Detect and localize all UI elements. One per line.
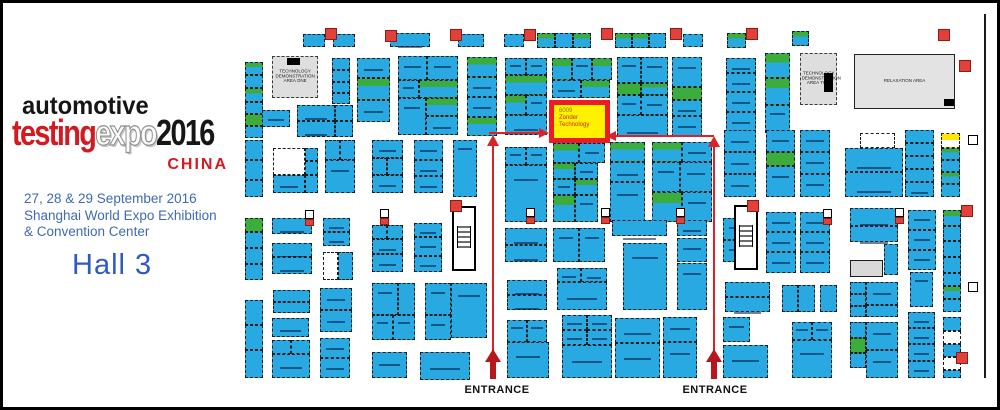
booth	[724, 174, 756, 197]
booth	[505, 58, 526, 75]
route-arrow-line	[616, 135, 714, 137]
pillar-marker	[670, 28, 682, 40]
booth	[552, 58, 572, 80]
entrance-label-left: ENTRANCE	[459, 384, 535, 396]
booth	[245, 264, 263, 280]
pillar-marker	[959, 60, 971, 72]
booth	[800, 232, 830, 252]
booth	[943, 299, 961, 312]
booth	[845, 148, 903, 172]
booth	[943, 317, 961, 331]
event-details: 27, 28 & 29 September 2016 Shanghai Worl…	[24, 191, 239, 241]
booth	[943, 210, 961, 226]
fire-extinguisher-icon	[895, 208, 904, 223]
booth	[908, 210, 936, 230]
booth	[683, 34, 703, 47]
booth	[245, 300, 263, 325]
pillar-marker	[601, 28, 613, 40]
logo-word-testing: testing	[12, 112, 95, 154]
fire-extinguisher-icon	[601, 208, 610, 223]
booth	[792, 340, 832, 378]
route-arrowhead-left	[606, 131, 616, 141]
booth	[615, 343, 660, 378]
booth	[338, 252, 353, 280]
booth	[579, 143, 605, 163]
booth	[908, 250, 936, 270]
booth	[414, 237, 442, 256]
booth	[414, 160, 443, 176]
booth	[649, 33, 666, 48]
pillar-marker	[385, 30, 397, 42]
booth	[505, 95, 526, 115]
booth	[765, 105, 790, 133]
booth	[573, 33, 591, 48]
booth	[453, 140, 477, 197]
booth	[414, 176, 443, 193]
booth	[426, 98, 458, 116]
booth	[587, 330, 612, 345]
booth	[323, 252, 338, 280]
booth	[766, 130, 795, 152]
tech-demo-area-one-marker	[287, 58, 300, 65]
pillar-marker	[938, 29, 950, 41]
booth	[425, 315, 451, 340]
booth	[672, 57, 702, 87]
pillar-marker	[450, 29, 462, 41]
booth	[273, 148, 305, 175]
booth	[467, 57, 497, 77]
booth	[615, 318, 660, 343]
booth	[526, 58, 547, 75]
booth	[245, 126, 263, 138]
booth	[866, 350, 898, 378]
booth	[850, 353, 866, 368]
booth	[507, 320, 527, 342]
booth	[398, 98, 426, 135]
booth	[800, 252, 830, 273]
booth	[581, 80, 610, 98]
booth	[663, 342, 697, 378]
route-arrowhead-right	[539, 128, 549, 138]
route-arrow-line	[713, 147, 715, 372]
booth	[575, 163, 598, 179]
booth	[905, 169, 934, 182]
booth	[884, 244, 898, 275]
booth	[414, 256, 442, 272]
booth	[765, 78, 790, 105]
booth	[320, 358, 350, 378]
booth	[297, 121, 335, 137]
booth	[420, 352, 470, 380]
booth	[272, 257, 312, 274]
booth	[941, 133, 960, 148]
booth	[426, 116, 458, 135]
event-dates: 27, 28 & 29 September 2016	[24, 191, 239, 208]
booth	[414, 223, 442, 237]
booth	[332, 70, 350, 82]
booth	[623, 243, 667, 310]
booth	[910, 272, 933, 307]
booth	[850, 322, 866, 338]
booth	[372, 352, 407, 378]
booth	[663, 317, 697, 342]
booth	[372, 175, 403, 193]
booth	[245, 232, 263, 248]
booth	[272, 340, 291, 354]
booth	[943, 370, 961, 378]
booth	[245, 102, 263, 114]
booth	[387, 158, 403, 175]
booth	[766, 232, 796, 252]
booth	[526, 147, 547, 165]
booth	[504, 34, 524, 47]
logo-word-china: CHINA	[148, 156, 228, 174]
fire-extinguisher-icon	[823, 209, 832, 224]
route-arrowhead-up	[487, 135, 499, 146]
pillar-marker	[325, 28, 337, 40]
booth	[908, 312, 935, 328]
booth	[943, 241, 961, 257]
entrance-label-right: ENTRANCE	[677, 384, 753, 396]
booth	[612, 220, 667, 236]
booth	[908, 328, 935, 344]
booth	[505, 245, 547, 262]
logo-word-year: 2016	[156, 112, 214, 154]
booth	[610, 182, 645, 222]
booth	[672, 87, 702, 100]
booth	[641, 83, 668, 95]
booth	[451, 283, 487, 338]
booth	[908, 230, 936, 250]
booth	[305, 161, 318, 175]
booth	[262, 110, 290, 127]
booth	[398, 283, 415, 315]
booth	[727, 33, 746, 48]
booth	[273, 290, 310, 302]
booth	[245, 248, 263, 264]
booth	[505, 147, 526, 165]
booth	[467, 77, 497, 97]
booth	[725, 282, 770, 297]
relaxation-area-label: RELAXATION AREA	[867, 79, 941, 84]
pillar-marker	[450, 200, 462, 212]
fire-extinguisher-icon	[676, 208, 685, 223]
booth	[610, 142, 645, 162]
booth	[617, 95, 641, 115]
booth	[652, 162, 680, 192]
pillar-marker	[956, 352, 968, 364]
booth	[425, 283, 451, 315]
booth	[766, 212, 796, 232]
fire-extinguisher-icon	[380, 209, 389, 224]
pillar-marker	[524, 29, 536, 41]
booth	[505, 228, 547, 245]
booth	[320, 338, 350, 358]
booth	[467, 97, 497, 117]
booth	[579, 228, 605, 262]
booth	[677, 263, 707, 310]
booth	[800, 130, 830, 152]
booth	[562, 330, 587, 345]
booth	[427, 56, 458, 80]
booth	[866, 322, 898, 350]
booth	[562, 345, 612, 378]
highlighted-booth-name-line1: Zonder	[559, 115, 603, 122]
booth	[725, 297, 770, 312]
booth	[303, 34, 325, 47]
booth	[372, 315, 393, 340]
booth	[507, 342, 549, 378]
door-marker	[968, 135, 978, 145]
booth	[414, 140, 443, 160]
booth	[305, 175, 318, 193]
booth	[941, 160, 960, 172]
booth	[553, 143, 579, 163]
booth	[766, 166, 795, 197]
booth	[617, 115, 668, 136]
booth	[943, 331, 961, 344]
booth	[941, 184, 960, 197]
booth	[641, 57, 668, 83]
booth	[632, 33, 649, 48]
booth	[724, 152, 756, 174]
booth	[866, 305, 898, 317]
booth	[575, 179, 598, 195]
highlighted-booth-name-line2: Technology	[559, 122, 603, 129]
booth	[782, 285, 798, 312]
booth	[766, 152, 795, 166]
door-marker	[968, 282, 978, 292]
booth	[557, 282, 607, 310]
booth	[325, 160, 355, 193]
booth	[552, 80, 581, 98]
booth	[765, 53, 790, 78]
booth	[587, 315, 612, 330]
office-box	[850, 260, 883, 277]
booth	[723, 345, 768, 378]
booth	[245, 218, 263, 232]
booth	[245, 325, 263, 350]
booth	[245, 350, 263, 378]
booth	[850, 282, 866, 294]
route-arrow-line	[492, 146, 494, 372]
booth	[291, 340, 310, 354]
booth	[272, 243, 312, 257]
booth	[641, 95, 668, 115]
floor-plan: automotive testingexpo2016 CHINA 27, 28 …	[0, 0, 1000, 410]
booth	[273, 302, 310, 313]
booth	[845, 172, 903, 197]
logo-word-expo: expo	[95, 112, 156, 154]
fire-extinguisher-icon	[526, 208, 535, 223]
booth	[724, 130, 756, 152]
booth	[398, 56, 427, 80]
pillar-marker	[746, 28, 758, 40]
booth	[581, 268, 607, 282]
booth	[617, 57, 641, 83]
booth	[323, 218, 350, 232]
booth	[592, 58, 612, 80]
booth	[372, 140, 403, 158]
booth	[610, 162, 645, 182]
booth	[332, 58, 350, 70]
booth	[332, 82, 350, 93]
booth	[943, 286, 961, 299]
event-venue-line2: & Convention Center	[24, 224, 239, 241]
booth	[357, 58, 390, 78]
booth	[800, 174, 830, 197]
booth	[672, 116, 702, 137]
booth	[905, 182, 934, 197]
booth	[372, 254, 403, 272]
pillar-marker	[961, 205, 973, 217]
booth	[393, 315, 415, 340]
booth	[357, 78, 390, 100]
stairs-icon	[734, 205, 758, 270]
booth	[860, 133, 895, 148]
booth	[357, 100, 390, 122]
booth	[677, 238, 707, 262]
booth	[507, 280, 547, 295]
booth	[325, 140, 340, 160]
booth	[505, 75, 547, 95]
booth	[941, 172, 960, 184]
booth	[905, 143, 934, 156]
booth	[850, 306, 866, 317]
booth	[800, 152, 830, 174]
booth	[615, 33, 632, 48]
booth	[245, 160, 263, 180]
booth	[672, 100, 702, 116]
booth	[617, 83, 641, 95]
booth	[555, 33, 573, 48]
highlighted-booth: 6009 Zonder Technology	[549, 100, 610, 143]
booth	[792, 322, 812, 340]
booth	[553, 195, 575, 222]
relaxation-area-marker	[944, 99, 954, 106]
booth	[320, 288, 352, 310]
hall-label: Hall 3	[72, 249, 152, 282]
booth	[850, 208, 898, 226]
booth	[572, 58, 592, 80]
stairs-icon	[452, 206, 476, 271]
tech-demo-area-two-marker	[824, 73, 833, 92]
booth	[245, 180, 263, 197]
booth	[332, 93, 350, 104]
booth	[850, 294, 866, 306]
booth	[905, 156, 934, 169]
booth	[320, 310, 352, 332]
booth	[908, 344, 935, 361]
booth	[908, 361, 935, 378]
booth	[245, 62, 263, 75]
booth	[398, 80, 419, 98]
booth	[526, 95, 547, 115]
booth	[245, 140, 263, 160]
booth	[682, 192, 712, 222]
booth	[652, 142, 682, 162]
booth	[273, 175, 305, 193]
booth	[245, 114, 263, 126]
booth	[820, 285, 837, 312]
relaxation-area: RELAXATION AREA	[854, 54, 955, 109]
booth	[340, 140, 355, 160]
booth	[553, 179, 575, 195]
booth	[726, 73, 756, 92]
booth	[335, 105, 353, 121]
booth	[527, 320, 547, 342]
hall-wall	[984, 14, 986, 378]
booth	[297, 105, 335, 121]
route-arrowhead-up	[708, 136, 720, 147]
booth	[562, 315, 587, 330]
booth	[323, 232, 350, 246]
booth	[905, 130, 934, 143]
booth	[272, 318, 309, 337]
booth	[943, 257, 961, 273]
entrance-arrow	[485, 349, 501, 379]
booth	[850, 226, 898, 242]
entrance-arrow	[706, 349, 722, 379]
booth	[305, 148, 318, 161]
booth	[723, 317, 750, 342]
booth	[792, 31, 809, 46]
booth	[372, 225, 387, 239]
booth	[372, 239, 403, 254]
tech-demo-area-one-label: TECHNOLOGY DEMONSTRATION AREA ONE	[275, 70, 314, 85]
highlighted-booth-number: 6009	[559, 108, 603, 115]
booth	[866, 282, 898, 305]
booth	[726, 92, 756, 112]
route-arrow-line	[489, 132, 541, 134]
booth	[553, 228, 579, 262]
logo-event-name: testingexpo2016	[12, 112, 214, 154]
booth	[557, 268, 581, 282]
booth	[943, 226, 961, 241]
booth	[726, 58, 756, 73]
booth	[798, 285, 815, 312]
booth	[387, 225, 403, 239]
event-venue-line1: Shanghai World Expo Exhibition	[24, 208, 239, 225]
booth	[850, 338, 866, 353]
fire-extinguisher-icon	[305, 210, 314, 225]
booth	[419, 80, 458, 98]
booth	[553, 163, 575, 179]
booth	[680, 162, 712, 192]
booth	[943, 273, 961, 286]
booth	[575, 195, 598, 222]
booth	[766, 252, 796, 273]
booth	[245, 75, 263, 88]
booth	[507, 295, 547, 310]
booth	[372, 283, 398, 315]
pillar-marker	[747, 200, 759, 212]
booth	[335, 121, 353, 137]
booth	[537, 33, 555, 48]
booth	[941, 148, 960, 160]
booth	[272, 354, 310, 378]
booth	[812, 322, 832, 340]
booth	[372, 158, 387, 175]
booth	[245, 88, 263, 102]
